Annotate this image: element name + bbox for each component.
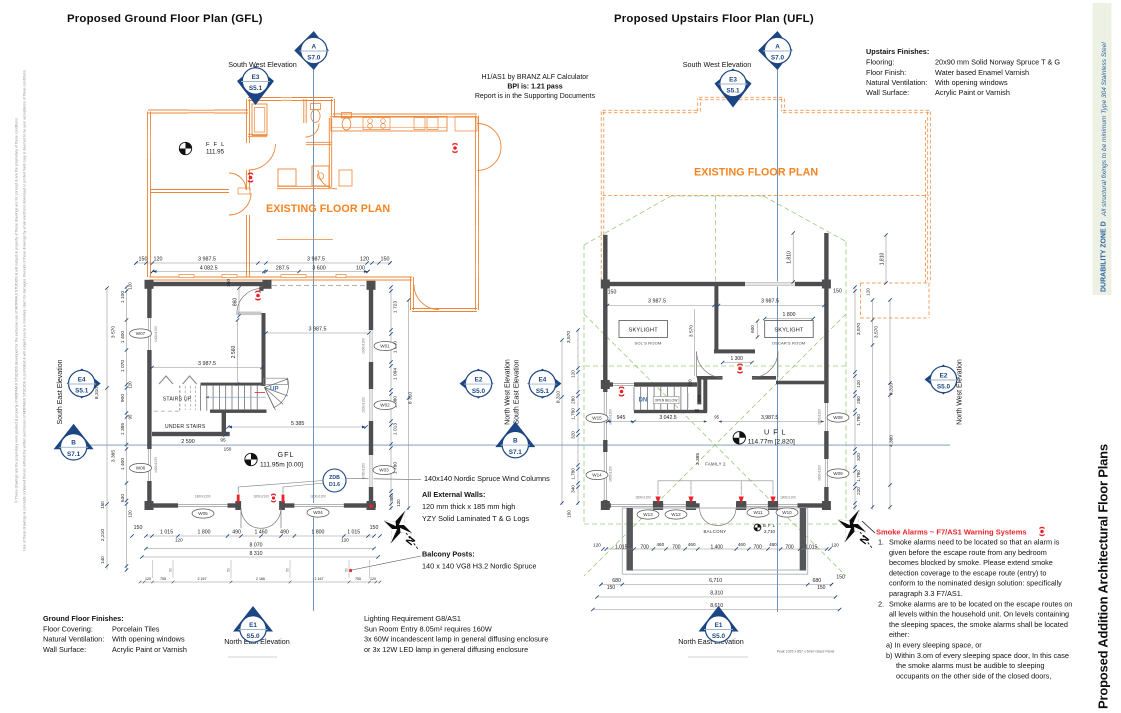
svg-text:140: 140 [100,556,105,564]
svg-text:S5.1: S5.1 [726,88,740,95]
svg-text:E1: E1 [715,622,723,629]
svg-text:paragraph 3.3 F7/AS1.: paragraph 3.3 F7/AS1. [889,589,963,598]
svg-text:BALCONY: BALCONY [703,529,726,534]
svg-text:755: 755 [160,577,166,581]
svg-text:111.95m [0.00]: 111.95m [0.00] [260,462,303,469]
svg-text:OSCAR'S ROOM: OSCAR'S ROOM [772,341,806,346]
svg-text:300: 300 [389,494,394,502]
svg-text:S5.1: S5.1 [75,388,89,395]
svg-text:W12: W12 [671,512,681,517]
svg-text:H1/AS1 by BRANZ ALF Calculator: H1/AS1 by BRANZ ALF Calculator [482,74,590,81]
svg-text:860: 860 [233,298,239,307]
svg-text:Peak 1025 x 857 x 6mm Glass Pa: Peak 1025 x 857 x 6mm Glass Panel [777,650,835,654]
svg-text:5 385: 5 385 [291,421,305,427]
svg-text:Acrylic Paint or Varnish: Acrylic Paint or Varnish [935,88,1010,97]
svg-text:150: 150 [607,585,616,591]
svg-text:S7.1: S7.1 [67,451,81,458]
svg-text:W01: W01 [380,344,390,349]
svg-text:F F L: F F L [206,142,226,148]
svg-text:1900x1200: 1900x1200 [362,397,366,413]
svg-text:1 400: 1 400 [120,458,126,471]
svg-text:120: 120 [593,543,601,548]
svg-text:2,210: 2,210 [100,529,106,542]
svg-text:8 310: 8 310 [250,551,263,557]
svg-text:220: 220 [856,487,861,495]
svg-text:111.95: 111.95 [206,149,225,156]
svg-text:2 166: 2 166 [256,577,265,581]
svg-text:1 800: 1 800 [311,530,324,536]
svg-text:Flooring:: Flooring: [866,58,894,67]
svg-text:With opening windows: With opening windows [935,78,1008,87]
svg-text:1 070: 1 070 [120,360,126,373]
svg-text:3 385: 3 385 [695,453,701,466]
svg-text:W07: W07 [136,331,146,336]
svg-text:2,710: 2,710 [764,529,776,534]
svg-text:Proposed Upstairs Floor Plan (: Proposed Upstairs Floor Plan (UFL) [614,13,814,25]
svg-text:UNDER STAIRS: UNDER STAIRS [165,424,206,430]
svg-text:120 mm thick x 185 mm high: 120 mm thick x 185 mm high [422,502,515,511]
svg-text:114.77m [2,820]: 114.77m [2,820] [748,439,795,446]
svg-text:W09: W09 [833,471,843,476]
svg-text:S5.1: S5.1 [249,85,263,92]
svg-text:150: 150 [134,525,143,531]
svg-text:Lighting Requirement G8/AS1: Lighting Requirement G8/AS1 [364,614,461,623]
svg-text:6,710: 6,710 [709,578,722,584]
svg-text:120: 120 [687,379,692,387]
svg-text:Report is in the Supporting Do: Report is in the Supporting Documents [475,93,596,100]
svg-text:E3: E3 [252,74,260,81]
svg-text:EXISTING FLOOR PLAN: EXISTING FLOOR PLAN [694,167,818,179]
svg-text:1900x1200: 1900x1200 [362,338,366,354]
svg-text:South West Elevation: South West Elevation [683,60,752,69]
svg-text:1800x1200: 1800x1200 [780,496,796,500]
svg-text:120: 120 [370,577,376,581]
svg-text:3,570: 3,570 [566,331,572,344]
svg-text:2 167: 2 167 [198,577,207,581]
svg-text:340: 340 [571,485,576,493]
svg-text:3 600: 3 600 [312,266,326,272]
svg-text:490: 490 [280,530,289,536]
svg-text:320: 320 [856,453,861,461]
svg-text:Smoke Alarms ~ F7/AS1 Warning: Smoke Alarms ~ F7/AS1 Warning Systems [876,528,1027,537]
svg-text:2 590: 2 590 [181,439,195,445]
svg-text:becomes blocked by smoke. Ple: becomes blocked by smoke. Please extend … [889,558,1053,567]
svg-text:700: 700 [672,545,681,551]
svg-text:E3: E3 [729,76,737,83]
svg-text:b) Within 3.om of every sleepi: b) Within 3.om of every sleeping space d… [886,651,1069,660]
svg-text:1800x1200: 1800x1200 [635,496,651,500]
svg-text:Ground Floor Finishes:: Ground Floor Finishes: [43,614,124,623]
svg-text:150: 150 [370,525,379,531]
svg-text:Proposed Addition Architectura: Proposed Addition Architectural Floor Pl… [1096,444,1111,709]
svg-text:4 082.5: 4 082.5 [200,266,218,272]
svg-text:South East Elevation: South East Elevation [513,359,520,424]
svg-text:DURABILITY ZONE D: DURABILITY ZONE D [1101,221,1108,292]
svg-text:95: 95 [220,438,226,444]
svg-text:280: 280 [856,396,861,404]
svg-text:3,570: 3,570 [874,326,880,339]
svg-text:3 042.5: 3 042.5 [659,415,676,421]
svg-text:287.5: 287.5 [276,266,290,272]
svg-text:1 100: 1 100 [120,291,126,304]
svg-text:Natural Ventilation:: Natural Ventilation: [866,78,927,87]
svg-text:W06: W06 [136,466,146,471]
svg-text:680: 680 [612,578,621,584]
svg-text:95: 95 [128,414,133,419]
svg-text:1,810: 1,810 [787,251,793,264]
svg-text:Upstairs Finishes:: Upstairs Finishes: [866,47,929,56]
svg-text:150: 150 [224,447,232,452]
svg-text:120: 120 [128,282,133,290]
svg-text:SKYLIGHT: SKYLIGHT [629,328,659,334]
svg-text:A: A [775,43,780,50]
svg-text:3 385: 3 385 [111,450,117,463]
svg-text:B: B [513,437,518,444]
svg-text:1800x1200: 1800x1200 [818,465,822,481]
svg-text:1780x1200: 1780x1200 [362,463,366,479]
svg-text:U F L: U F L [764,428,787,437]
svg-text:All structural fixings to be m: All structural fixings to be minimum Typ… [1101,42,1108,217]
svg-text:1 015: 1 015 [347,530,360,536]
svg-text:Floor Finish:: Floor Finish: [866,68,906,77]
svg-text:1.: 1. [878,538,884,547]
svg-text:95: 95 [714,415,719,420]
svg-text:South West Elevation: South West Elevation [228,60,297,69]
svg-text:320: 320 [571,431,576,439]
svg-text:Wall Surface:: Wall Surface: [43,645,86,654]
svg-text:150: 150 [381,257,390,263]
svg-text:1 355: 1 355 [120,423,126,436]
svg-text:1 013: 1 013 [393,423,399,436]
svg-text:460: 460 [769,542,777,547]
svg-text:140x140 Nordic Spruce Wind Col: 140x140 Nordic Spruce Wind Columns [424,474,550,483]
svg-text:3 987.5: 3 987.5 [198,257,216,263]
svg-text:120: 120 [128,510,133,518]
svg-text:S5.0: S5.0 [246,633,260,640]
svg-text:YZY Solid Laminated T & G Logs: YZY Solid Laminated T & G Logs [422,514,529,523]
svg-text:1,810: 1,810 [880,253,886,266]
svg-text:460: 460 [656,542,664,547]
svg-text:8,610: 8,610 [710,603,723,609]
svg-text:S5.0: S5.0 [712,633,726,640]
svg-text:Smoke alarms need to be locate: Smoke alarms need to be located so that … [889,538,1060,547]
svg-text:120: 120 [145,577,151,581]
svg-text:3 570: 3 570 [111,326,117,339]
svg-text:all levels within the househol: all levels within the household unit. On… [889,610,1069,619]
svg-text:280: 280 [571,396,576,404]
svg-text:Natural Ventilation:: Natural Ventilation: [43,635,104,644]
svg-text:W08: W08 [833,415,843,420]
svg-text:1800x1200: 1800x1200 [195,495,211,499]
svg-text:680: 680 [812,578,821,584]
svg-text:Wall Surface:: Wall Surface: [866,88,909,97]
svg-text:S7.0: S7.0 [307,55,321,62]
svg-text:With opening windows: With opening windows [112,635,185,644]
svg-text:100: 100 [356,266,365,272]
svg-text:S5.0: S5.0 [937,384,951,391]
svg-text:ZDB: ZDB [329,475,340,481]
svg-text:150: 150 [567,510,572,518]
svg-text:120: 120 [856,380,861,388]
svg-text:North West Elevation: North West Elevation [504,359,511,425]
svg-text:1 800: 1 800 [198,530,211,536]
svg-text:1800x1200: 1800x1200 [609,466,613,482]
svg-text:W03: W03 [379,468,389,473]
svg-text:150: 150 [836,575,845,581]
svg-text:20x90 mm Solid Norway Spruce T: 20x90 mm Solid Norway Spruce T & G [935,58,1060,67]
svg-text:the sleeping spaces, the smoke: the sleeping spaces, the smoke alarms sh… [889,620,1068,629]
svg-text:South East Elevation: South East Elevation [57,359,64,424]
svg-text:North West Elevation: North West Elevation [957,359,964,425]
svg-text:460: 460 [738,542,746,547]
svg-text:given before the escape route: given before the escape route from any b… [889,548,1047,557]
svg-text:B: B [71,440,76,447]
svg-text:detection coverage to the esca: detection coverage to the escape route (… [889,568,1046,577]
svg-text:occupants on the other side of: occupants on the other side of the close… [896,671,1051,680]
svg-text:1800x2100: 1800x2100 [253,495,269,499]
svg-text:1800x1200: 1800x1200 [310,495,326,499]
svg-text:S7.0: S7.0 [771,55,785,62]
svg-text:W13: W13 [643,512,653,517]
svg-text:All External Walls:: All External Walls: [422,490,485,499]
svg-text:1,780: 1,780 [856,470,861,482]
svg-text:BPI is: 1.21 pass: BPI is: 1.21 pass [507,84,562,91]
svg-text:1,015: 1,015 [805,545,818,551]
svg-text:150: 150 [833,289,842,295]
svg-text:Water based Enamel Varnish: Water based Enamel Varnish [935,68,1029,77]
svg-text:W14: W14 [592,473,602,478]
svg-text:E2: E2 [475,376,483,383]
svg-text:B F L: B F L [763,523,776,528]
svg-text:945: 945 [617,415,626,421]
svg-text:W15: W15 [592,416,602,421]
svg-text:3 987.5: 3 987.5 [198,361,216,367]
svg-text:2 167: 2 167 [315,577,324,581]
svg-text:DN: DN [639,398,648,404]
svg-text:W05: W05 [198,511,208,516]
svg-text:140 x 140 VG8 H3.2 Nordic Spru: 140 x 140 VG8 H3.2 Nordic Spruce [422,562,536,571]
svg-text:150: 150 [139,257,148,263]
svg-text:S7.1: S7.1 [509,449,523,456]
svg-text:STAIRS UP: STAIRS UP [163,397,192,403]
svg-text:150: 150 [608,290,617,296]
svg-text:Balcony Posts:: Balcony Posts: [422,550,475,559]
svg-text:SOL'S ROOM: SOL'S ROOM [635,341,662,346]
svg-text:50: 50 [227,568,231,572]
svg-text:UP: UP [270,386,279,393]
svg-text:150: 150 [100,501,105,509]
svg-text:700: 700 [785,545,794,551]
svg-text:either:: either: [889,630,909,639]
svg-text:E2: E2 [940,372,948,379]
svg-text:1 800: 1 800 [783,312,796,318]
svg-text:490: 490 [232,530,241,536]
svg-text:W02: W02 [380,403,390,408]
svg-text:900: 900 [697,394,702,402]
svg-text:the smoke alarms must be audib: the smoke alarms must be audible to slee… [896,661,1044,670]
svg-text:or 3x 12W LED lamp in general: or 3x 12W LED lamp in general diffusing … [364,645,528,654]
svg-text:50: 50 [345,568,349,572]
svg-text:1 400: 1 400 [120,331,126,344]
svg-text:© These drawings are the propr: © These drawings are the proprietary wor… [15,117,19,503]
svg-text:3 987.5: 3 987.5 [309,327,327,333]
svg-text:3,987.5: 3,987.5 [761,415,778,421]
svg-text:Acrylic Paint or Varnish: Acrylic Paint or Varnish [112,645,187,654]
svg-text:S5.0: S5.0 [472,388,486,395]
svg-text:OPEN BELOW: OPEN BELOW [655,399,679,403]
svg-text:150: 150 [226,279,232,287]
svg-text:1,780: 1,780 [856,414,861,426]
svg-text:120: 120 [128,381,133,389]
svg-text:120: 120 [360,257,369,263]
svg-text:120: 120 [866,288,871,296]
svg-text:8 070: 8 070 [250,543,263,549]
svg-text:E1: E1 [249,622,257,629]
svg-text:D1.6: D1.6 [329,482,340,488]
svg-text:GFL: GFL [278,450,295,459]
svg-text:W11: W11 [753,510,763,515]
svg-text:3 987.5: 3 987.5 [648,299,666,305]
svg-text:120: 120 [831,543,839,548]
svg-text:1 094: 1 094 [393,368,399,381]
svg-text:1 015: 1 015 [160,530,173,536]
svg-text:1 460: 1 460 [255,530,268,536]
svg-text:conform to the nominated desig: conform to the nominated design solution… [889,579,1062,588]
svg-text:2 560: 2 560 [231,346,237,359]
svg-text:120: 120 [154,257,163,263]
svg-text:1 300: 1 300 [730,356,743,362]
svg-text:Use of these drawings & concep: Use of these drawings & concepts contain… [23,69,27,550]
svg-text:3 987.5: 3 987.5 [307,257,325,263]
svg-text:8,310: 8,310 [889,383,895,396]
svg-text:8 310: 8 310 [408,392,414,405]
svg-text:8,310: 8,310 [710,591,723,597]
svg-text:120: 120 [175,538,183,543]
svg-text:50: 50 [286,568,290,572]
svg-text:Proposed Ground Floor Plan (GF: Proposed Ground Floor Plan (GFL) [67,13,263,25]
svg-text:700: 700 [640,545,649,551]
svg-text:120: 120 [341,538,349,543]
svg-text:8,310: 8,310 [556,391,562,404]
svg-text:8,310: 8,310 [94,387,100,400]
svg-text:3 987.5: 3 987.5 [761,299,779,305]
svg-text:755: 755 [355,577,361,581]
svg-text:460: 460 [688,542,696,547]
svg-text:Smoke alarms are to be located: Smoke alarms are to be located on the es… [889,599,1072,608]
svg-text:1 723: 1 723 [393,301,399,314]
svg-text:120: 120 [396,499,401,507]
svg-text:900: 900 [120,394,126,402]
svg-text:50: 50 [169,568,173,572]
svg-text:4,380: 4,380 [889,435,895,448]
svg-text:E4: E4 [78,376,86,383]
svg-text:Floor Covering:: Floor Covering: [43,624,93,633]
svg-text:Porcelain Tiles: Porcelain Tiles [112,624,160,633]
svg-text:FAMILY 2: FAMILY 2 [705,462,726,467]
svg-text:1400x1925: 1400x1925 [154,457,158,473]
svg-text:95: 95 [695,408,700,413]
svg-text:1,015: 1,015 [615,545,628,551]
svg-text:3 570: 3 570 [688,325,694,338]
svg-text:1,400: 1,400 [710,545,723,551]
svg-text:120: 120 [571,370,576,378]
svg-text:630: 630 [120,494,126,502]
svg-text:3x 60W incandescent lamp in ge: 3x 60W incandescent lamp in general diff… [364,635,548,644]
svg-text:W10: W10 [782,510,792,515]
svg-text:600: 600 [750,325,755,333]
svg-text:1400x1925: 1400x1925 [154,326,158,342]
svg-text:SKYLIGHT: SKYLIGHT [774,328,804,334]
svg-text:E4: E4 [538,376,546,383]
svg-text:W04: W04 [313,510,323,515]
svg-text:3,570: 3,570 [856,323,862,336]
svg-text:2.: 2. [878,599,884,608]
svg-text:Sun Room Entry 8.05m² requires: Sun Room Entry 8.05m² requires 160W [364,624,492,633]
svg-text:150: 150 [817,585,826,591]
svg-text:700: 700 [754,545,763,551]
svg-text:EXISTING FLOOR PLAN: EXISTING FLOOR PLAN [266,203,390,215]
svg-text:1,780: 1,780 [571,468,576,480]
svg-text:a) In every sleeping space, or: a) In every sleeping space, or [886,641,982,650]
svg-text:S5.1: S5.1 [536,388,550,395]
svg-text:A: A [311,43,316,50]
svg-text:1,780: 1,780 [571,408,576,420]
